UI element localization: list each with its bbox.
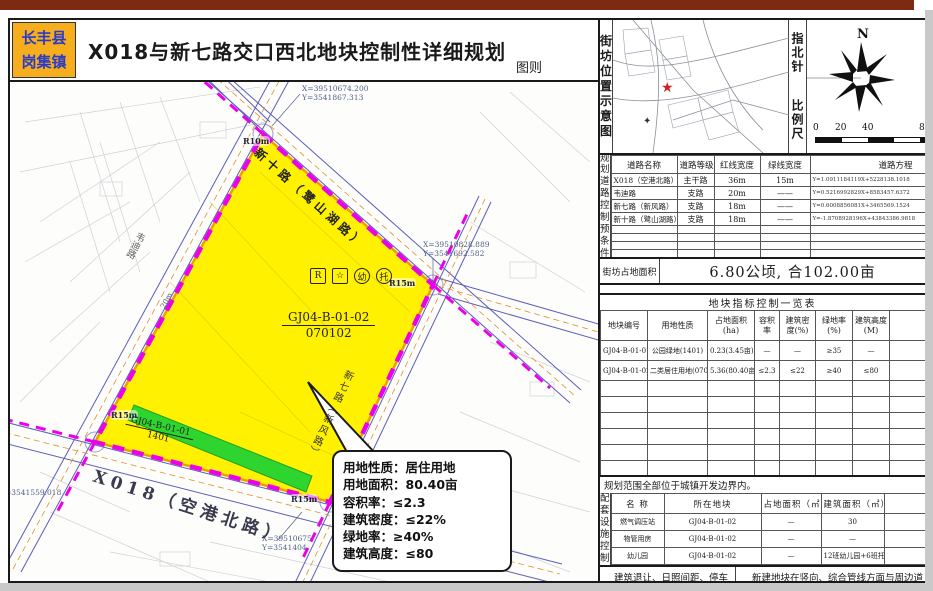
radius-label: R15m xyxy=(290,494,318,504)
scale-bar xyxy=(815,137,925,143)
star-icon: ☆ xyxy=(332,268,348,284)
bottom-notes-row: 建筑退让、日照间距、停车位配置 等 新建地块在竖向、综合管线方面与周边道 xyxy=(600,567,925,581)
location-block: 街坊位置示意图 xyxy=(600,20,925,155)
facility-row: 幼儿园 GJ04-B-01-02 — 12班幼儿园+6班托所 随 xyxy=(611,548,925,565)
radius-label: R10m xyxy=(242,136,270,146)
planning-map: X=39510674.200 Y=3541867.313 X=39510828.… xyxy=(10,82,598,581)
facility-table: 名 称 所在地块 占地面积（㎡） 建筑面积（㎡） 备注 燃气调压站 GJ04-B… xyxy=(611,493,925,565)
plan-sheet: 长丰县 岗集镇 X018与新七路交口西北地块控制性详细规划 图则 xyxy=(0,0,933,591)
facility-side-label: 配套设施控制 xyxy=(600,493,611,565)
north-letter: N xyxy=(857,27,869,42)
county-badge: 长丰县 岗集镇 xyxy=(12,22,76,78)
facility-icons: R ☆ 幼 托 xyxy=(310,268,392,284)
location-minimap: ★ ✦ xyxy=(613,20,789,153)
coord-label-west: Y=3541559.018 xyxy=(10,488,61,497)
bottom-note-left: 建筑退让、日照间距、停车位配置 等 xyxy=(600,567,736,581)
interchange-icon: ✦ xyxy=(643,116,651,127)
callout-line: 建筑密度：≤22% xyxy=(343,511,501,528)
document-frame: 长丰县 岗集镇 X018与新七路交口西北地块控制性详细规划 图则 xyxy=(8,18,925,583)
page-edge-bottom xyxy=(0,583,925,591)
road-row: X018（空港北路） 主干路 36m 15m Y=1.0911184119X+5… xyxy=(611,174,925,187)
road-row: 新七路（新风路） 支路 18m —— Y=0.6008856081X+34655… xyxy=(611,200,925,213)
index-table: 地块编号 用地性质 占地面积(ha) 容积率 建筑密度(%) 绿地率(%) 建筑… xyxy=(600,310,925,477)
right-panel: 街坊位置示意图 xyxy=(600,20,925,581)
spacer xyxy=(600,285,925,295)
callout-line: 容积率：≤2.3 xyxy=(343,494,501,511)
scale-title: 比例尺 xyxy=(789,87,806,154)
coord-label-north: X=39510674.200 Y=3541867.313 xyxy=(302,84,369,103)
index-table-block: 地块指标控制一览表 地块编号 用地性质 占地面积(ha) 容积率 建筑密度(%)… xyxy=(600,295,925,477)
location-map-title: 街坊位置示意图 xyxy=(600,20,613,153)
index-row: GJ04-B-01-02 二类居住用地(070102) 5.36(80.40亩)… xyxy=(601,361,926,381)
coord-label-east: X=39510828.889 Y=3541692.582 xyxy=(423,240,490,259)
callout-line: 建筑高度：≤80 xyxy=(343,545,501,562)
nursery-icon: 托 xyxy=(376,268,392,284)
callout-line: 用地面积：80.40亩 xyxy=(343,476,501,493)
facility-row: 物管用房 GJ04-B-01-02 — — — xyxy=(611,531,925,548)
block-area-row: 街坊占地面积 6.80公顷, 合102.00亩 xyxy=(600,259,925,285)
boundary-note: 规划范围全部位于城镇开发边界内。 xyxy=(600,477,925,493)
site-star-icon: ★ xyxy=(661,80,674,96)
road-table-block: 规划道路控制预条件 道路名称 道路等级 红线宽度 绿线宽度 道路方程 X018（… xyxy=(600,155,925,259)
compass-area: N 0 xyxy=(807,20,925,153)
compass-rose-icon xyxy=(829,42,895,112)
county-name: 长丰县 xyxy=(21,26,66,50)
compass-scale-labels: 指北针 比例尺 xyxy=(789,20,807,153)
road-table-side-label: 规划道路控制预条件 xyxy=(600,155,611,257)
road-row: 新十路（鹭山湖路） 支路 18m —— Y=-1.8708928196X+438… xyxy=(611,213,925,226)
callout-line: 绿地率：≥40% xyxy=(343,528,501,545)
residential-parcel xyxy=(95,134,433,502)
bottom-note-right: 新建地块在竖向、综合管线方面与周边道 xyxy=(736,567,925,581)
residential-icon: R xyxy=(310,268,326,284)
left-column: 长丰县 岗集镇 X018与新七路交口西北地块控制性详细规划 图则 xyxy=(10,20,600,581)
compass-title: 指北针 xyxy=(789,20,806,87)
index-table-title: 地块指标控制一览表 xyxy=(600,295,925,310)
block-area-value: 6.80公顷, 合102.00亩 xyxy=(660,259,925,283)
parcel-info-callout: 用地性质：居住用地 用地面积：80.40亩 容积率：≤2.3 建筑密度：≤22%… xyxy=(332,450,512,572)
town-name: 岗集镇 xyxy=(21,50,66,74)
parcel-code-main: GJ04-B-01-02 070102 xyxy=(282,310,375,340)
page-edge-right xyxy=(925,10,933,591)
road-table: 道路名称 道路等级 红线宽度 绿线宽度 道路方程 X018（空港北路） 主干路 … xyxy=(611,155,925,258)
road-row: 韦迪路 支路 20m —— Y=0.5216992829X+8583457.63… xyxy=(611,187,925,200)
radius-label: R15m xyxy=(388,278,416,288)
facility-table-block: 配套设施控制 名 称 所在地块 占地面积（㎡） 建筑面积（㎡） 备注 燃气调压站… xyxy=(600,493,925,567)
top-maroon-bar xyxy=(0,0,914,10)
kindergarten-icon: 幼 xyxy=(354,268,370,284)
sheet-label: 图则 xyxy=(516,57,542,76)
facility-row: 燃气调压站 GJ04-B-01-02 — 30 随 xyxy=(611,514,925,531)
title-bar: 长丰县 岗集镇 X018与新七路交口西北地块控制性详细规划 图则 xyxy=(10,20,598,82)
page-title: X018与新七路交口西北地块控制性详细规划 xyxy=(88,36,506,65)
block-area-label: 街坊占地面积 xyxy=(600,259,660,283)
callout-line: 用地性质：居住用地 xyxy=(343,459,501,476)
index-row: GJ04-B-01-01 公园绿地(1401) 0.23(3.45亩) — — … xyxy=(601,341,926,361)
